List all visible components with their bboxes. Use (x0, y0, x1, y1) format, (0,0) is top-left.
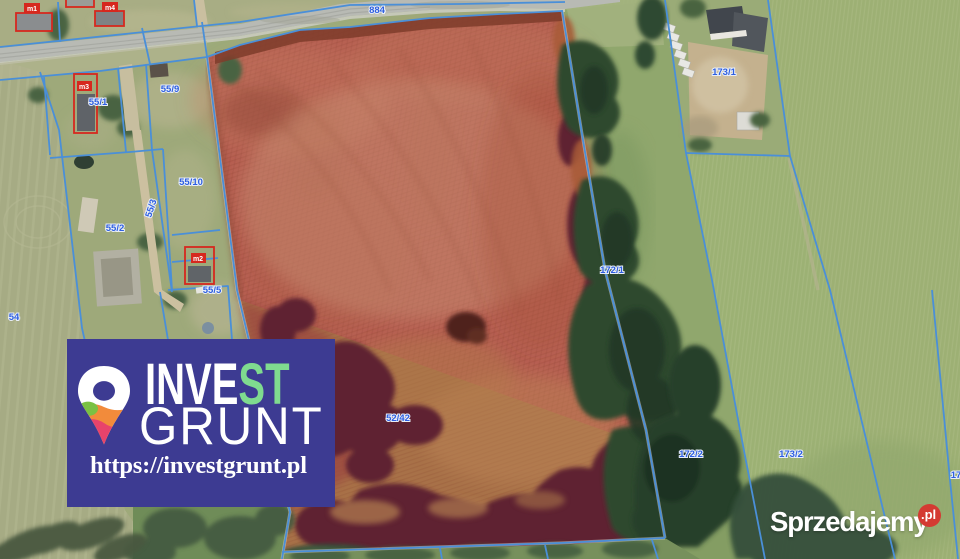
svg-text:m1: m1 (27, 6, 37, 13)
svg-text:173/1: 173/1 (712, 67, 736, 78)
svg-text:17: 17 (951, 470, 960, 481)
svg-text:172/2: 172/2 (679, 449, 703, 460)
svg-text:m3: m3 (79, 84, 89, 91)
svg-text:54: 54 (9, 312, 20, 323)
svg-text:884: 884 (369, 5, 386, 16)
svg-text:m2: m2 (193, 256, 203, 263)
svg-text:173/2: 173/2 (779, 449, 803, 460)
svg-text:172/1: 172/1 (600, 265, 624, 276)
svg-text:m4: m4 (105, 5, 115, 12)
svg-text:55/1: 55/1 (89, 97, 108, 108)
svg-text:55/2: 55/2 (106, 223, 125, 234)
svg-text:55/5: 55/5 (203, 285, 222, 296)
svg-text:55/9: 55/9 (161, 84, 180, 95)
svg-text:52/42: 52/42 (386, 413, 410, 424)
svg-text:55/10: 55/10 (179, 177, 203, 188)
